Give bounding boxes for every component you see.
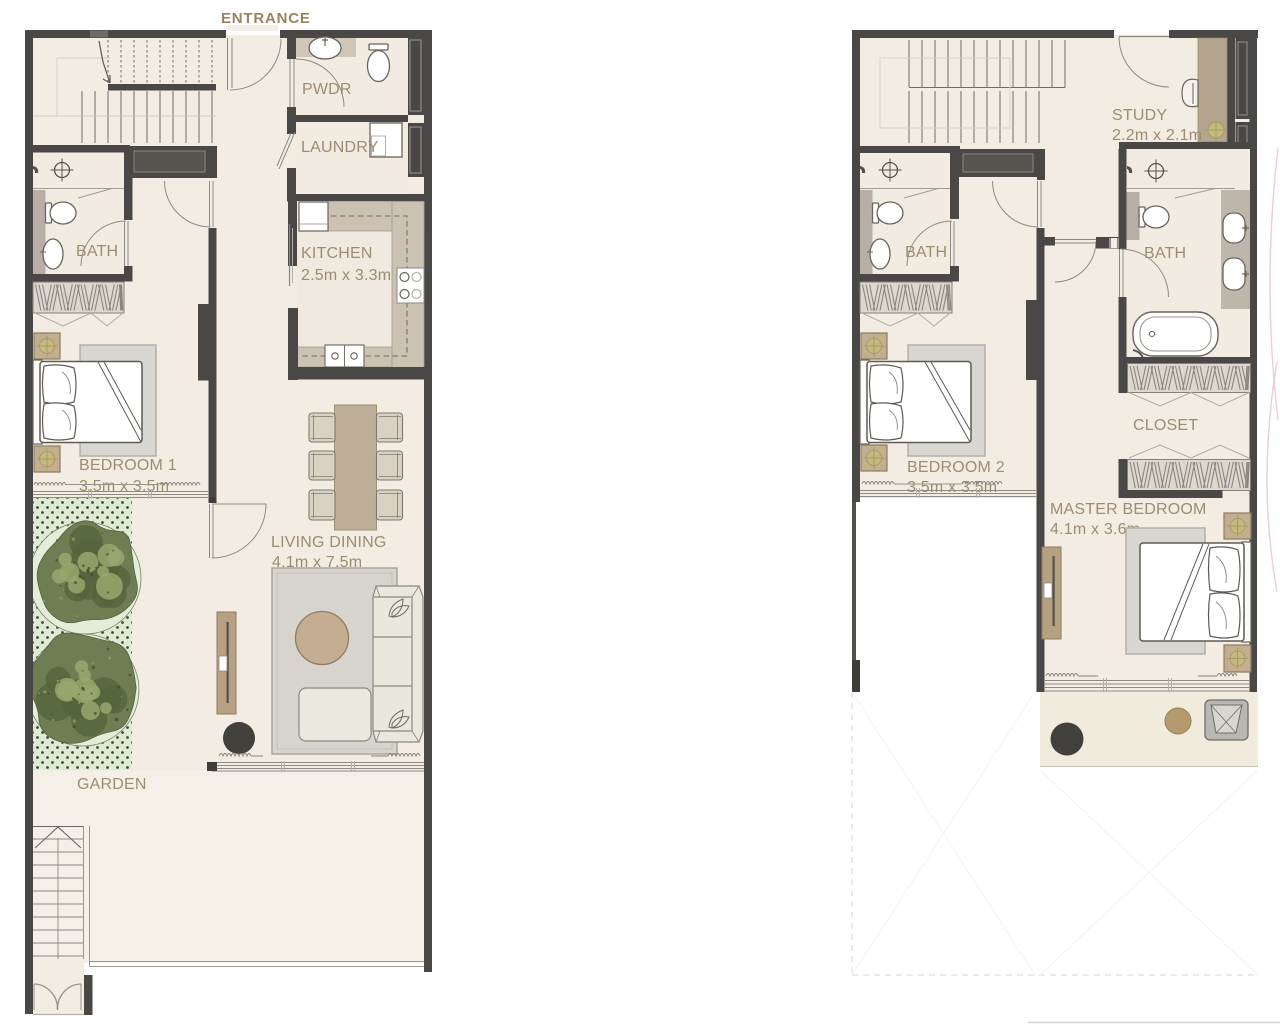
svg-text:KITCHEN: KITCHEN xyxy=(301,245,373,262)
svg-text:LAUNDRY: LAUNDRY xyxy=(301,139,379,156)
svg-text:BEDROOM 1: BEDROOM 1 xyxy=(79,457,177,474)
svg-text:LIVING DINING: LIVING DINING xyxy=(271,534,387,551)
svg-text:MASTER BEDROOM: MASTER BEDROOM xyxy=(1050,501,1207,518)
svg-text:BATH: BATH xyxy=(1144,245,1186,262)
svg-text:3.5m x 3.5m: 3.5m x 3.5m xyxy=(79,478,169,495)
svg-text:STUDY: STUDY xyxy=(1112,107,1167,124)
svg-text:ENTRANCE: ENTRANCE xyxy=(221,10,311,27)
svg-text:2.5m x 3.3m: 2.5m x 3.3m xyxy=(301,267,391,284)
svg-text:GARDEN: GARDEN xyxy=(77,776,147,793)
svg-text:BATH: BATH xyxy=(905,244,947,261)
svg-text:CLOSET: CLOSET xyxy=(1133,417,1198,434)
svg-text:PWDR: PWDR xyxy=(302,81,352,98)
svg-text:2.2m x 2.1m: 2.2m x 2.1m xyxy=(1112,127,1202,144)
svg-text:BEDROOM 2: BEDROOM 2 xyxy=(907,459,1005,476)
svg-text:BATH: BATH xyxy=(76,243,118,260)
